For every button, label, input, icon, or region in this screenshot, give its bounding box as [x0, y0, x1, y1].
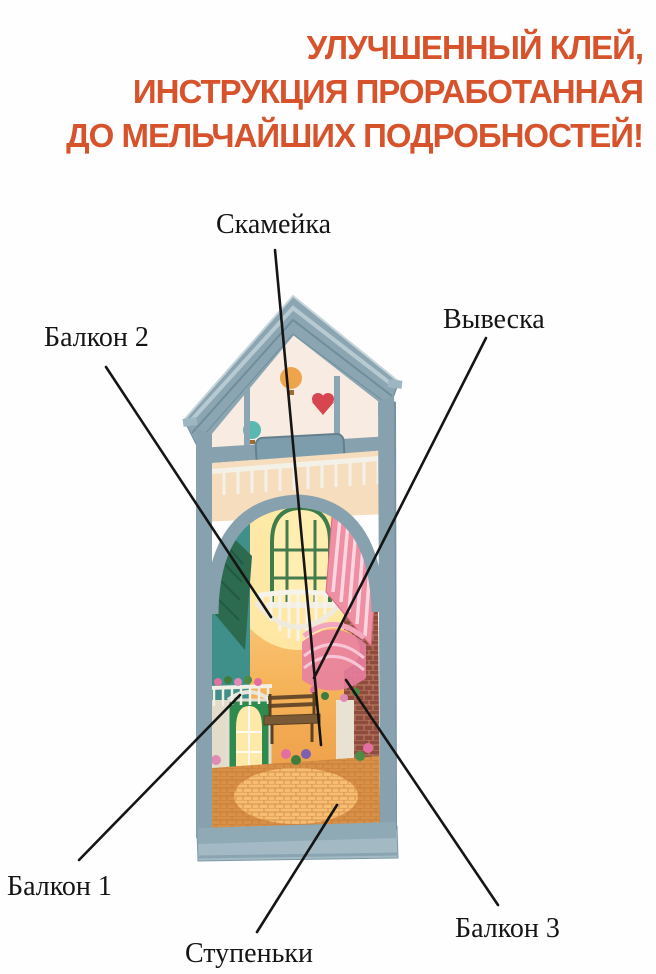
book-nook-photo	[0, 0, 656, 974]
product-infographic: УЛУЧШЕННЫЙ КЛЕЙ, ИНСТРУКЦИЯ ПРОРАБОТАННА…	[0, 0, 656, 974]
callout-balcony1: Балкон 1	[7, 871, 112, 903]
callout-balcony2: Балкон 2	[44, 322, 149, 354]
callout-steps: Ступеньки	[185, 938, 313, 970]
callout-balcony3: Балкон 3	[455, 913, 560, 945]
callout-sign: Вывеска	[443, 304, 545, 336]
callout-bench: Скамейка	[216, 209, 331, 241]
